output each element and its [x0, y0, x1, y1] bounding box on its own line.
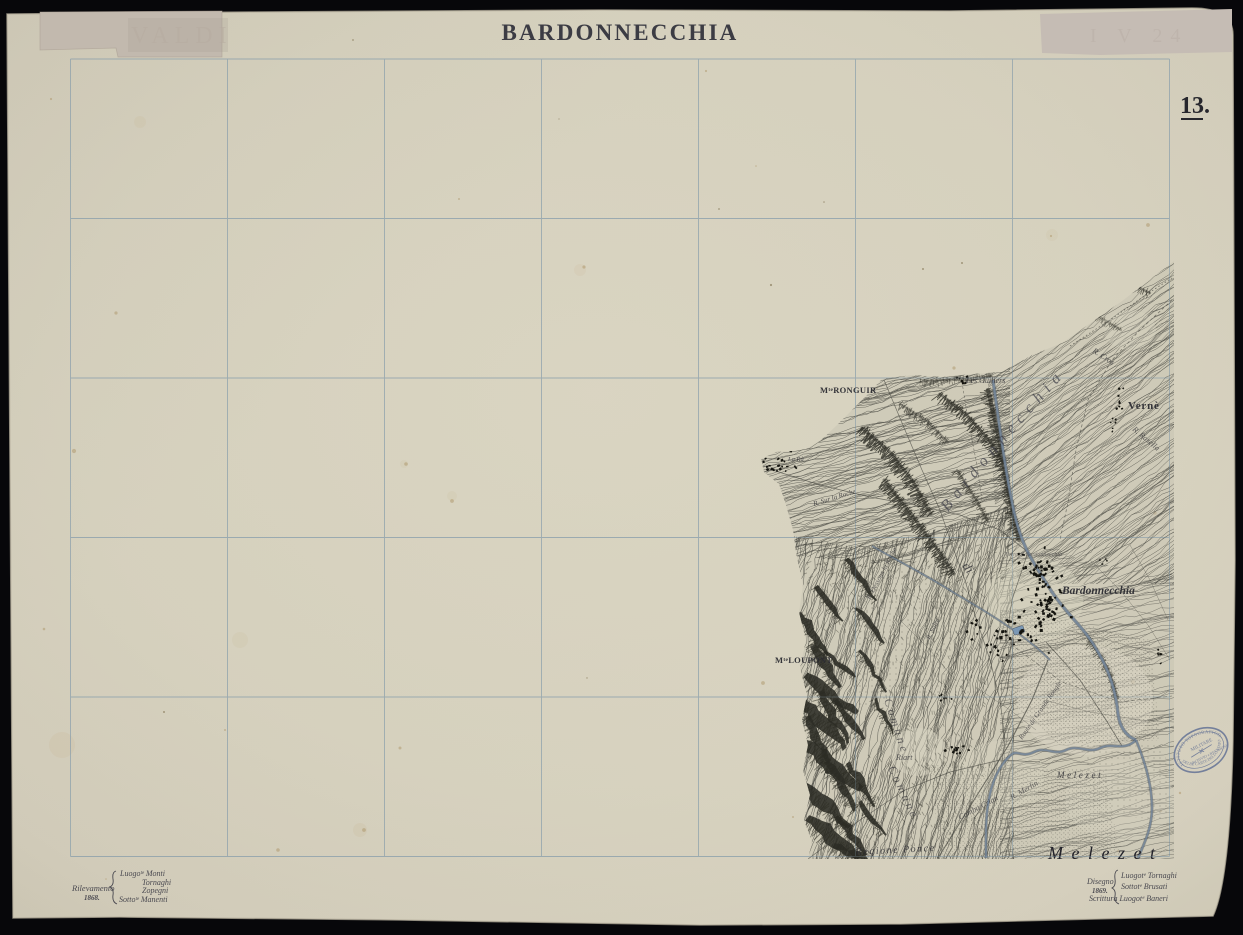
svg-text:Disegno: Disegno — [1086, 877, 1114, 886]
svg-text:13.: 13. — [1180, 93, 1210, 119]
svg-text:Bardonnecchia: Bardonnecchia — [1061, 585, 1135, 597]
svg-text:Luogotᵉ Tornaghi: Luogotᵉ Tornaghi — [1120, 871, 1177, 880]
svg-text:Sottoᵗᵉ Manenti: Sottoᵗᵉ Manenti — [119, 895, 168, 904]
svg-text:I V 24: I V 24 — [1090, 25, 1188, 47]
svg-text:Sottotᵉ Brusati: Sottotᵉ Brusati — [1121, 882, 1167, 891]
svg-text:VALDI: VALDI — [131, 23, 233, 49]
svg-text:Les Guiliers: Les Guiliers — [965, 376, 1005, 385]
svg-text:Vernè: Vernè — [1128, 400, 1160, 412]
svg-text:Scrittura Luogotᵉ Baneri: Scrittura Luogotᵉ Baneri — [1089, 894, 1168, 903]
svg-text:Torre di Bardonnecchia: Torre di Bardonnecchia — [1005, 552, 1062, 558]
svg-text:BARDONNECCHIA: BARDONNECCHIA — [502, 20, 739, 45]
svg-text:Luogoᵗᵉ Monti: Luogoᵗᵉ Monti — [119, 869, 165, 878]
svg-text:Riart: Riart — [895, 753, 913, 762]
svg-text:Zopegni: Zopegni — [142, 886, 168, 895]
svg-text:1868.: 1868. — [84, 894, 100, 902]
svg-text:La Rà: La Rà — [787, 456, 804, 463]
svg-text:Melezet: Melezet — [1056, 770, 1103, 780]
svg-text:Rilevamento: Rilevamento — [71, 883, 114, 893]
